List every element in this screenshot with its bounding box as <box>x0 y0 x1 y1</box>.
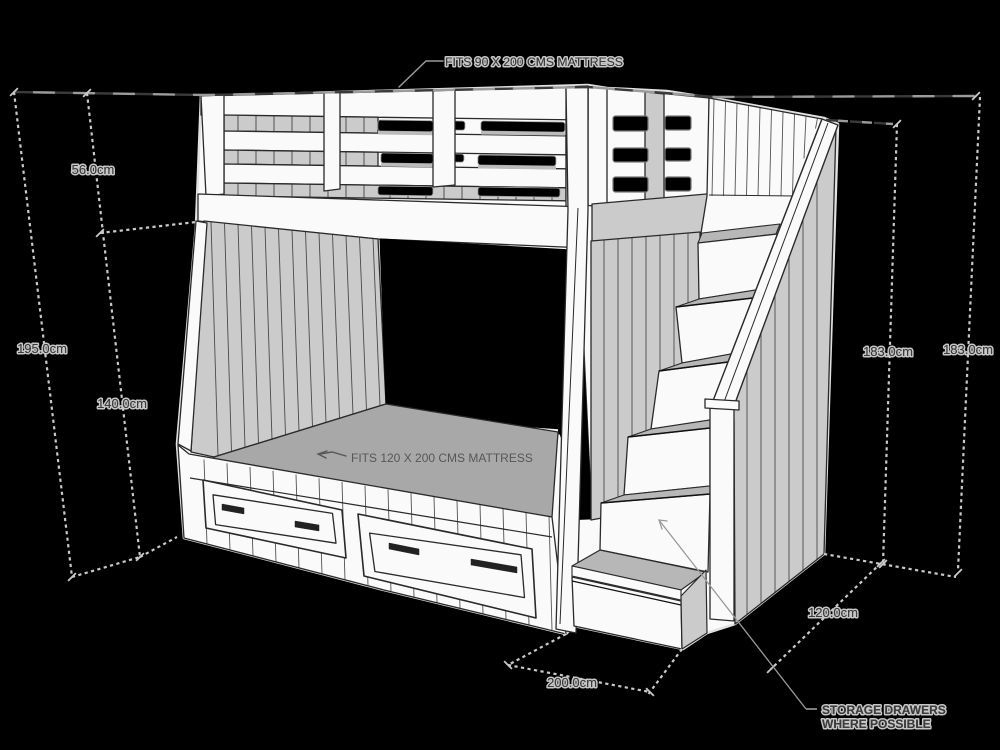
svg-text:FITS 120 X 200 CMS MATTRESS: FITS 120 X 200 CMS MATTRESS <box>351 451 533 465</box>
svg-text:FITS 90 X 200 CMS MATTRESS: FITS 90 X 200 CMS MATTRESS <box>445 55 623 69</box>
svg-text:140.0cm: 140.0cm <box>97 396 147 411</box>
svg-text:56.0cm: 56.0cm <box>72 162 115 177</box>
svg-text:195.0cm: 195.0cm <box>17 341 67 356</box>
svg-text:120.0cm: 120.0cm <box>808 605 858 620</box>
svg-text:200.0cm: 200.0cm <box>547 675 597 690</box>
svg-text:STORAGE DRAWERS: STORAGE DRAWERS <box>822 703 946 717</box>
svg-text:183.0cm: 183.0cm <box>863 344 913 359</box>
svg-text:WHERE POSSIBLE: WHERE POSSIBLE <box>822 717 931 731</box>
svg-text:183.0cm: 183.0cm <box>943 342 993 357</box>
